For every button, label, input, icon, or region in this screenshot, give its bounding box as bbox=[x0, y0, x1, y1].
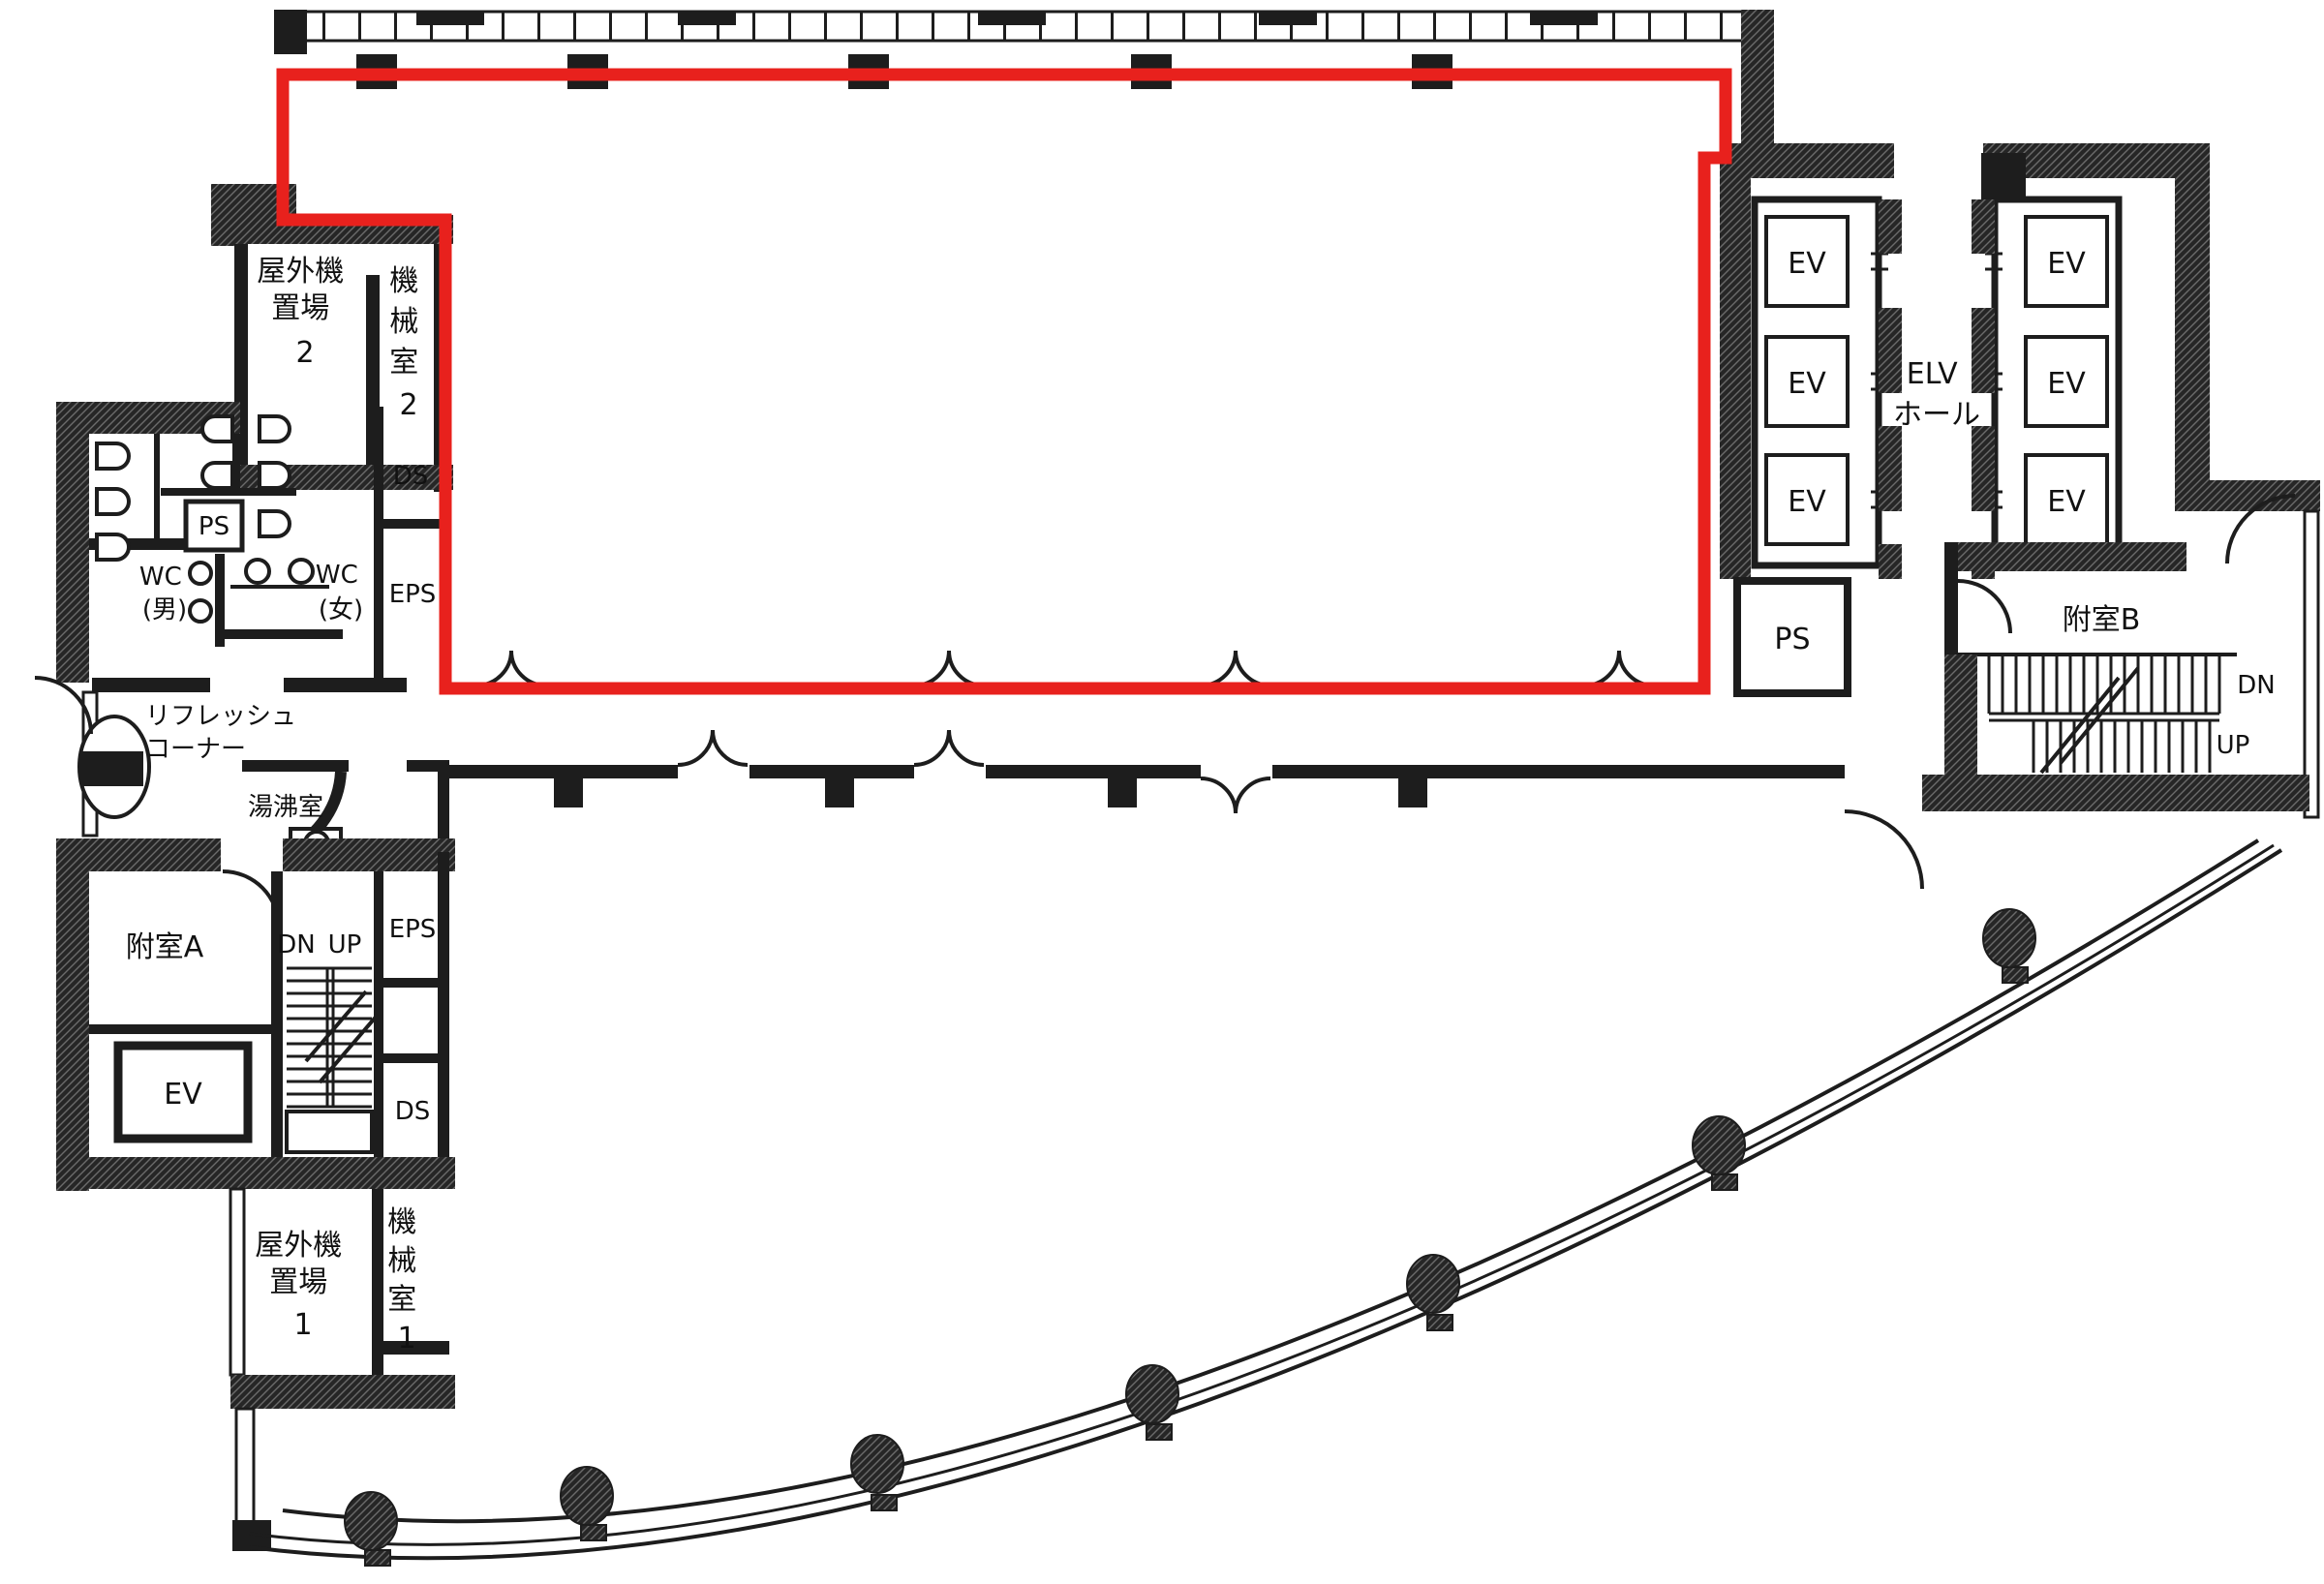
label-line: WC bbox=[139, 563, 182, 592]
exit-door-arc bbox=[1845, 811, 1922, 889]
label-line: (男) bbox=[142, 595, 187, 624]
label-line: 1 bbox=[293, 1308, 312, 1342]
label-ds-lower: DS bbox=[395, 1097, 431, 1126]
lower-left-walls bbox=[56, 838, 455, 1191]
label-eps-upper: EPS bbox=[389, 580, 437, 609]
stair-landing bbox=[287, 1112, 372, 1152]
label-eps-lower: EPS bbox=[389, 915, 437, 944]
corridor-lower-wall bbox=[445, 765, 1845, 778]
label-kikaishitsu1: 機 械 室 1 bbox=[387, 1205, 426, 1356]
basin bbox=[290, 560, 313, 583]
label-fushitsu-b: 附室B bbox=[2063, 603, 2141, 637]
column bbox=[825, 775, 854, 807]
label-elv-hall: ELV ホール bbox=[1893, 357, 1980, 432]
urinal bbox=[97, 443, 129, 469]
label-line: 置場 bbox=[271, 291, 329, 325]
basin bbox=[190, 600, 211, 622]
label-wc-female: WC (女) bbox=[316, 561, 366, 624]
label-line: 2 bbox=[295, 336, 314, 370]
floor-plan: 屋外機 置場 2 機 械 室 2 PS WC (男) WC (女) DS EPS… bbox=[0, 0, 2324, 1584]
label-ps-wc: PS bbox=[199, 512, 229, 541]
label-line: 械 bbox=[387, 1244, 416, 1278]
label-ev-shaft-2: EV bbox=[1788, 367, 1826, 401]
label-line: 械 bbox=[389, 305, 418, 339]
label-ev-left: EV bbox=[164, 1078, 202, 1112]
label-kikaishitsu2: 機 械 室 2 bbox=[389, 264, 428, 422]
label-line: 1 bbox=[397, 1322, 415, 1356]
corridor bbox=[445, 651, 1845, 813]
column bbox=[1398, 775, 1427, 807]
balcony-columns bbox=[345, 909, 2035, 1566]
column bbox=[554, 775, 583, 807]
urinal bbox=[97, 489, 129, 514]
label-yuwakashi: 湯沸室 bbox=[248, 793, 323, 822]
label-line: ELV bbox=[1907, 357, 1958, 391]
toilet bbox=[202, 416, 232, 442]
basin bbox=[246, 560, 269, 583]
door-arc bbox=[223, 871, 279, 928]
label-line: 屋外機 bbox=[257, 255, 344, 289]
label-line: コーナー bbox=[145, 735, 246, 764]
label-ps-right: PS bbox=[1774, 623, 1810, 656]
label-line: 室 bbox=[387, 1283, 416, 1317]
label-line: 機 bbox=[389, 264, 418, 298]
balcony-curve bbox=[250, 840, 2281, 1558]
column bbox=[1108, 775, 1137, 807]
toilet bbox=[260, 416, 290, 442]
label-line: 屋外機 bbox=[255, 1229, 342, 1263]
door-arc bbox=[1958, 581, 2010, 633]
label-okugaiki2: 屋外機 置場 2 bbox=[257, 255, 353, 370]
label-up-left: UP bbox=[328, 930, 362, 960]
label-ds-upper: DS bbox=[393, 462, 429, 491]
toilet bbox=[202, 463, 232, 488]
outer-curve-1 bbox=[250, 845, 2274, 1544]
label-dn-right: DN bbox=[2237, 671, 2275, 700]
label-ev-shaft-3: EV bbox=[1788, 485, 1826, 519]
label-line: 機 bbox=[387, 1205, 416, 1239]
label-line: リフレッシュ bbox=[145, 702, 296, 731]
basin bbox=[190, 563, 211, 584]
label-line: ホール bbox=[1893, 398, 1980, 432]
stair-treads-lower bbox=[2033, 720, 2210, 773]
stairs-left bbox=[287, 968, 378, 1152]
label-line: (女) bbox=[319, 595, 363, 624]
label-wc-male: WC (男) bbox=[139, 563, 190, 624]
inner-curve bbox=[283, 840, 2258, 1521]
label-okugaiki1: 屋外機 置場 1 bbox=[255, 1229, 352, 1342]
floor-plan-svg: 屋外機 置場 2 機 械 室 2 PS WC (男) WC (女) DS EPS… bbox=[0, 0, 2324, 1584]
label-line: 室 bbox=[389, 346, 418, 380]
label-ev-shaft-6: EV bbox=[2047, 485, 2086, 519]
corridor-doors bbox=[476, 651, 1654, 813]
label-line: 置場 bbox=[269, 1265, 327, 1299]
stairs-right bbox=[1989, 656, 2219, 773]
urinal bbox=[97, 534, 129, 560]
toilet bbox=[260, 463, 290, 488]
stair-treads-upper bbox=[1989, 656, 2219, 714]
toilet bbox=[260, 511, 290, 536]
label-dn-left: DN bbox=[277, 930, 315, 960]
outer-curve-2 bbox=[250, 850, 2281, 1558]
label-ev-shaft-1: EV bbox=[1788, 247, 1826, 281]
stair-divider bbox=[1989, 714, 2219, 720]
label-ev-shaft-4: EV bbox=[2047, 247, 2086, 281]
label-fushitsu-a: 附室A bbox=[126, 930, 204, 964]
leased-area-outline bbox=[283, 75, 1726, 688]
label-ev-shaft-5: EV bbox=[2047, 367, 2086, 401]
label-refresh-corner: リフレッシュ コーナー bbox=[145, 702, 304, 764]
label-up-right: UP bbox=[2217, 731, 2250, 760]
label-line: 2 bbox=[399, 388, 417, 422]
label-line: WC bbox=[316, 561, 358, 590]
